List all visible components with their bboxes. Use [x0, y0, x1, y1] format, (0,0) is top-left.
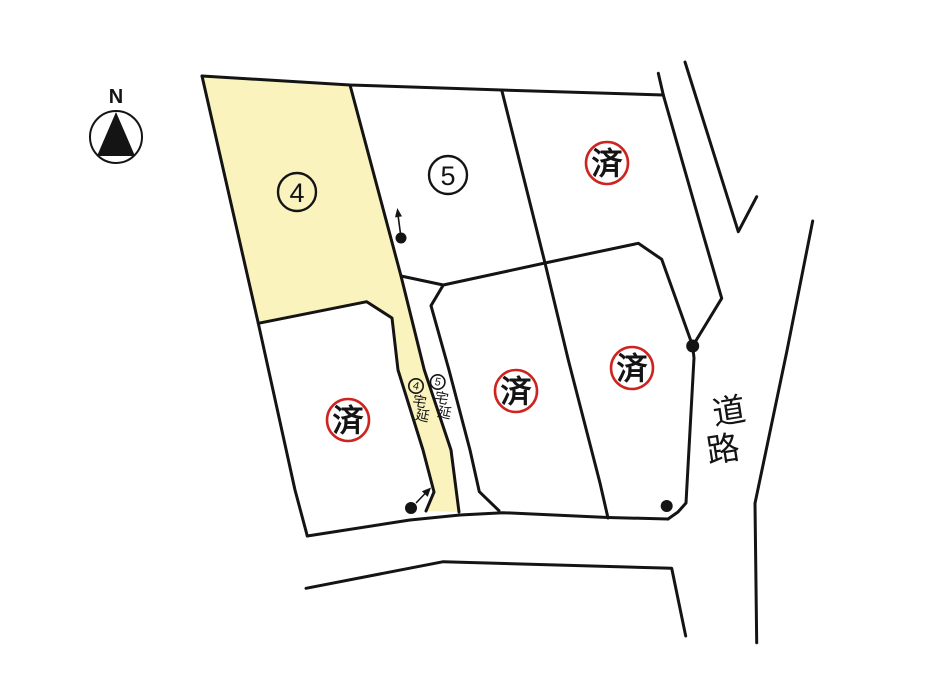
lot-map-canvas: N 4 5 済 済 済 済 4 宅 延 — [0, 0, 947, 681]
lot-4-number-label: 4 — [289, 178, 304, 208]
road-char-1: 道 — [710, 390, 748, 432]
corner-marker-dot-bottom — [405, 502, 417, 514]
sold-stamp-middle: 済 — [495, 370, 537, 412]
lot-map: N 4 5 済 済 済 済 4 宅 延 — [0, 0, 947, 681]
corner-marker-dot-southeast — [661, 500, 673, 512]
lot-5-number-label: 5 — [440, 161, 455, 191]
sold-stamp-right: 済 — [611, 347, 653, 389]
corner-marker-dot-road-junction — [686, 340, 699, 353]
corner-marker-dot-top — [396, 233, 407, 244]
map-background — [0, 0, 947, 681]
sold-stamp-left: 済 — [327, 399, 369, 441]
road-char-2: 路 — [704, 428, 742, 470]
sold-stamp-top-right: 済 — [586, 142, 628, 184]
sold-stamp-label: 済 — [617, 352, 649, 387]
sold-stamp-label: 済 — [333, 404, 365, 439]
sold-stamp-label: 済 — [501, 375, 533, 410]
compass-north-label: N — [109, 86, 123, 108]
sold-stamp-label: 済 — [592, 147, 624, 182]
